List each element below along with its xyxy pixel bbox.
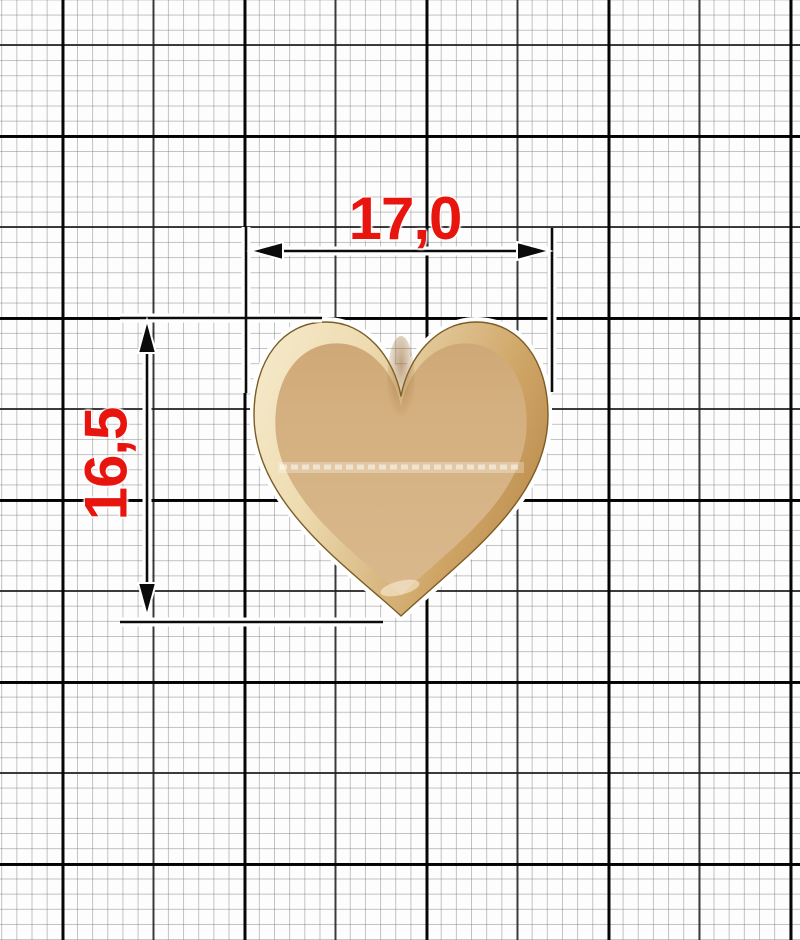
heart-charm-svg [250, 316, 552, 622]
width-dimension-label: 17,0 [345, 184, 465, 253]
dimension-drawing-page: 17,0 16,5 [0, 0, 800, 940]
height-dimension-label: 16,5 [72, 408, 141, 521]
heart-charm-image [250, 316, 552, 622]
